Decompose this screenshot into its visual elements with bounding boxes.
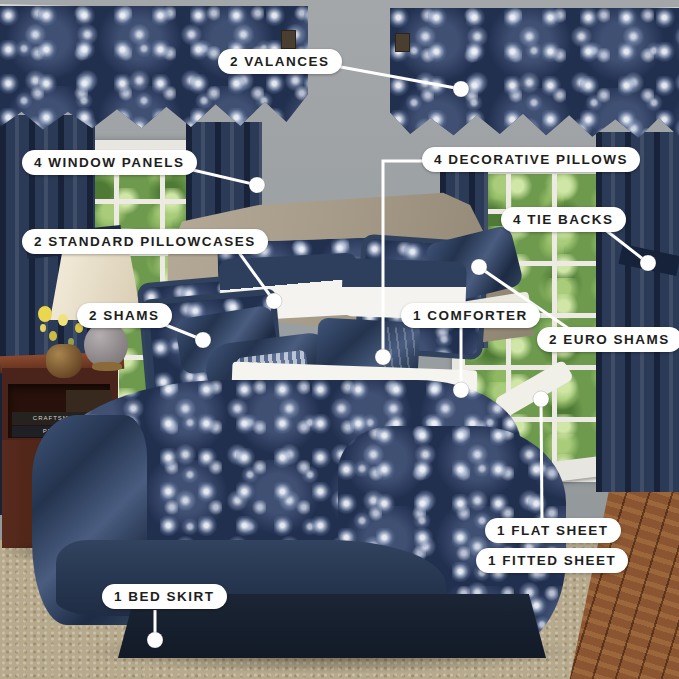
callout-line-flat-sheet	[541, 399, 542, 522]
callout-dot-bed-skirt	[147, 632, 163, 648]
callout-fitted-sheet: 1 FITTED SHEET	[476, 548, 628, 573]
callout-valances-label: 2 VALANCES	[230, 54, 330, 69]
callout-dot-flat-sheet	[533, 391, 549, 407]
callout-bed-skirt-label: 1 BED SKIRT	[114, 589, 215, 604]
callout-dot-shams	[195, 332, 211, 348]
callout-dot-euro-shams	[471, 259, 487, 275]
callout-window-panels-label: 4 WINDOW PANELS	[34, 155, 185, 170]
callout-comforter-label: 1 COMFORTER	[413, 308, 528, 323]
callout-fitted-sheet-label: 1 FITTED SHEET	[488, 553, 616, 568]
callout-flat-sheet: 1 FLAT SHEET	[485, 518, 621, 543]
callout-dot-valances	[453, 81, 469, 97]
callout-flat-sheet-label: 1 FLAT SHEET	[497, 523, 609, 538]
callout-dot-tie-backs	[640, 255, 656, 271]
callout-euro-shams-label: 2 EURO SHAMS	[549, 332, 670, 347]
callout-decorative-pillows: 4 DECORATIVE PILLOWS	[422, 147, 640, 172]
callout-dot-decorative-pillows	[375, 349, 391, 365]
product-photo-bedding-set: CRAFTSMAN PREPPY	[0, 0, 679, 679]
callout-shams: 2 SHAMS	[77, 303, 172, 328]
callout-shams-label: 2 SHAMS	[89, 308, 160, 323]
callout-valances: 2 VALANCES	[218, 49, 342, 74]
callout-euro-shams: 2 EURO SHAMS	[537, 327, 679, 352]
callout-line-tie-backs	[603, 228, 648, 263]
callout-window-panels: 4 WINDOW PANELS	[22, 150, 197, 175]
callout-line-standard-pillowcases	[235, 247, 274, 301]
callout-decorative-pillows-label: 4 DECORATIVE PILLOWS	[434, 152, 628, 167]
callout-dot-window-panels	[249, 177, 265, 193]
callout-bed-skirt: 1 BED SKIRT	[102, 584, 227, 609]
callout-comforter: 1 COMFORTER	[401, 303, 540, 328]
callout-tie-backs: 4 TIE BACKS	[501, 207, 626, 232]
callout-standard-pillowcases: 2 STANDARD PILLOWCASES	[22, 229, 268, 254]
callout-standard-pillowcases-label: 2 STANDARD PILLOWCASES	[34, 234, 256, 249]
callout-line-valances	[330, 65, 461, 89]
callout-tie-backs-label: 4 TIE BACKS	[513, 212, 614, 227]
callout-dot-standard-pillowcases	[266, 293, 282, 309]
callout-dot-comforter	[453, 382, 469, 398]
